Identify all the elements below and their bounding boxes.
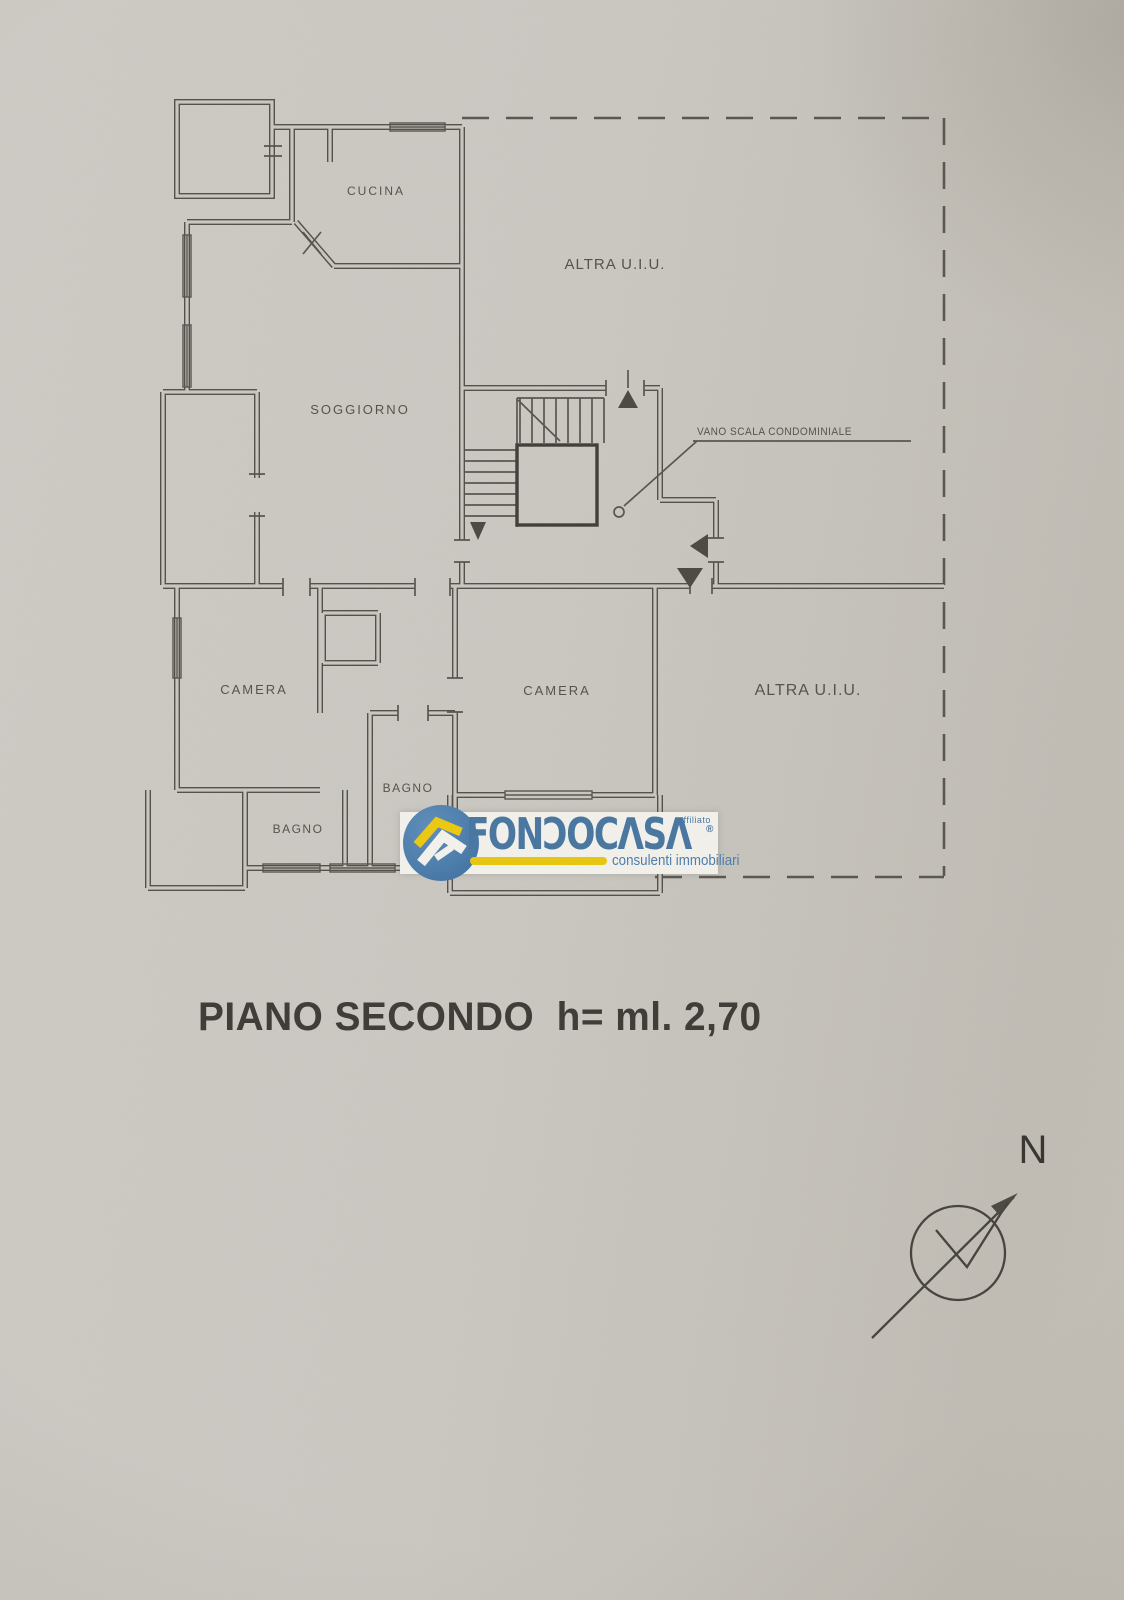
room-label-camera-left: CAMERA [204,682,304,697]
compass-icon [872,1193,1018,1338]
room-label-bagno-left: BAGNO [258,822,338,836]
room-label-cucina: CUCINA [330,184,422,198]
stairwell-callout-label: VANO SCALA CONDOMINIALE [697,426,855,438]
fondocasa-tagline: consulenti immobiliari [612,853,740,869]
stair-down-arrow [470,522,486,540]
door-triangles [470,390,708,588]
walls [148,102,944,893]
compass-arrowhead [991,1193,1018,1216]
window-symbols [173,123,592,872]
room-label-bagno-center: BAGNO [368,781,448,795]
scanned-floorplan-photo: CUCINA SOGGIORNO CAMERA CAMERA BAGNO BAG… [0,0,1124,1600]
floor-plan-drawing [0,0,1124,1600]
adjacent-unit-label-top: ALTRA U.I.U. [550,256,680,273]
callout-anchor-circle [614,507,624,517]
compass-n-label: N [1008,1128,1058,1173]
fondocasa-watermark: FONƆOCΛSΛ affiliato ® consulenti immobil… [400,812,718,874]
room-label-soggiorno: SOGGIORNO [300,402,420,417]
yellow-underline [470,857,607,865]
room-label-camera-right: CAMERA [507,683,607,698]
elevator-symbol [517,445,597,525]
adjacent-unit-label-right: ALTRA U.I.U. [733,682,883,700]
floor-caption: PIANO SECONDO h= ml. 2,70 [198,995,762,1040]
registered-mark: ® [706,824,713,835]
